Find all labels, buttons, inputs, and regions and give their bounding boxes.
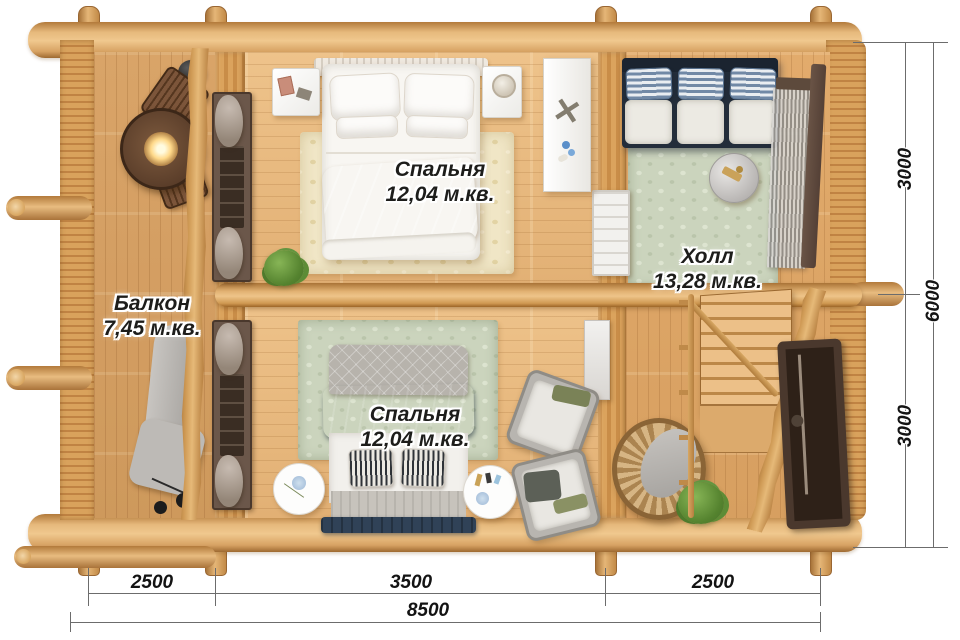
dim-right-total: 6000 [923,265,945,337]
nightstand-left [272,68,320,116]
room-area: 13,28 м.кв. [615,270,800,295]
cosmetics-icon [485,473,492,484]
dim-tick [215,568,216,606]
photo-frame-icon [277,76,294,97]
room-name: Спальня [305,403,525,428]
room-area: 12,04 м.кв. [330,183,550,208]
room-area: 12,04 м.кв. [305,428,525,453]
railing-post [679,480,688,485]
sofa-striped-pillow [729,67,776,101]
dim-tick [88,568,89,606]
dim-tick [820,612,821,632]
log-cap [8,369,25,386]
dim-tick [820,568,821,606]
dim-bottom-left: 2500 [116,572,188,594]
towel-icon [557,153,569,163]
window-right-dark [777,338,851,529]
plant-icon [264,250,304,286]
bottle-icon [568,149,575,156]
log-stub-left-2 [6,366,92,390]
cosmetics-icon [494,474,502,484]
bedroom-bottom-label: Спальня 12,04 м.кв. [305,403,525,453]
room-name: Холл [615,245,800,270]
railing-post [679,435,688,440]
room-name: Балкон [62,292,242,317]
log-stub-left-1 [6,196,92,220]
balcony-label: Балкон 7,45 м.кв. [62,292,242,342]
striped-pillow [348,448,393,488]
dim-tick [853,547,948,548]
corner-log-bottom-left [14,546,216,568]
window-glass [220,374,244,456]
stair-railing [688,294,694,518]
side-table-round [273,463,325,515]
sofa-seat-cushion [625,100,672,144]
dim-right-top: 3000 [895,133,917,205]
curtain-icon [215,227,243,279]
coffee-table-round [709,153,759,203]
window-bedroom-top [212,92,252,282]
railing-post [679,390,688,395]
room-area: 7,45 м.кв. [62,317,242,342]
sheet-fold [326,152,476,154]
dim-tick [853,42,948,43]
hall-label: Холл 13,28 м.кв. [615,245,800,295]
pillow [406,115,469,139]
nightstand-right [482,66,522,118]
dim-tick [605,568,606,606]
bedroom-top-label: Спальня 12,04 м.кв. [330,158,550,208]
side-table-round [463,465,517,519]
dim-bottom-total: 8500 [392,600,464,622]
curtain-icon [215,455,243,507]
moss-pouf-icon [678,482,724,524]
wall-console: ✕ [543,58,591,192]
gray-throw [523,469,562,503]
candle-icon [144,132,178,166]
lamp-icon [492,74,516,98]
railing-post [679,345,688,350]
starfish-icon: ✕ [547,94,586,130]
flower-icon [476,492,489,505]
footboard [321,517,476,533]
flower-icon [292,476,306,490]
dim-tick [878,294,920,295]
sofa-seat-cushion [729,100,776,144]
railing-post [679,300,688,305]
striped-pillow [400,448,445,488]
book-icon [296,87,312,101]
dim-line-bottom-total [70,622,820,623]
floor-plan: ✕ [0,0,960,640]
room-name: Спальня [330,158,550,183]
window-bedroom-bottom [212,320,252,510]
window-glass [220,146,244,228]
dim-right-bottom: 3000 [895,390,917,462]
dim-bottom-right: 2500 [677,572,749,594]
bottle-icon [562,141,570,149]
pillow [336,115,399,139]
dim-tick [70,612,71,632]
sofa-seat-cushion [677,100,724,144]
sofa-navy [622,58,778,148]
cosmetics-icon [475,474,483,487]
dim-bottom-middle: 3500 [375,572,447,594]
log-cap [8,199,25,216]
gold-cup-icon [736,166,743,173]
sofa-striped-pillow [625,67,672,101]
curtain-icon [215,95,243,147]
sofa-striped-pillow [678,68,725,101]
log-cap [16,549,31,564]
pillow [403,73,475,121]
wheel-icon [154,501,167,514]
left-exterior-wall [60,40,94,520]
foot-blanket [331,491,466,519]
